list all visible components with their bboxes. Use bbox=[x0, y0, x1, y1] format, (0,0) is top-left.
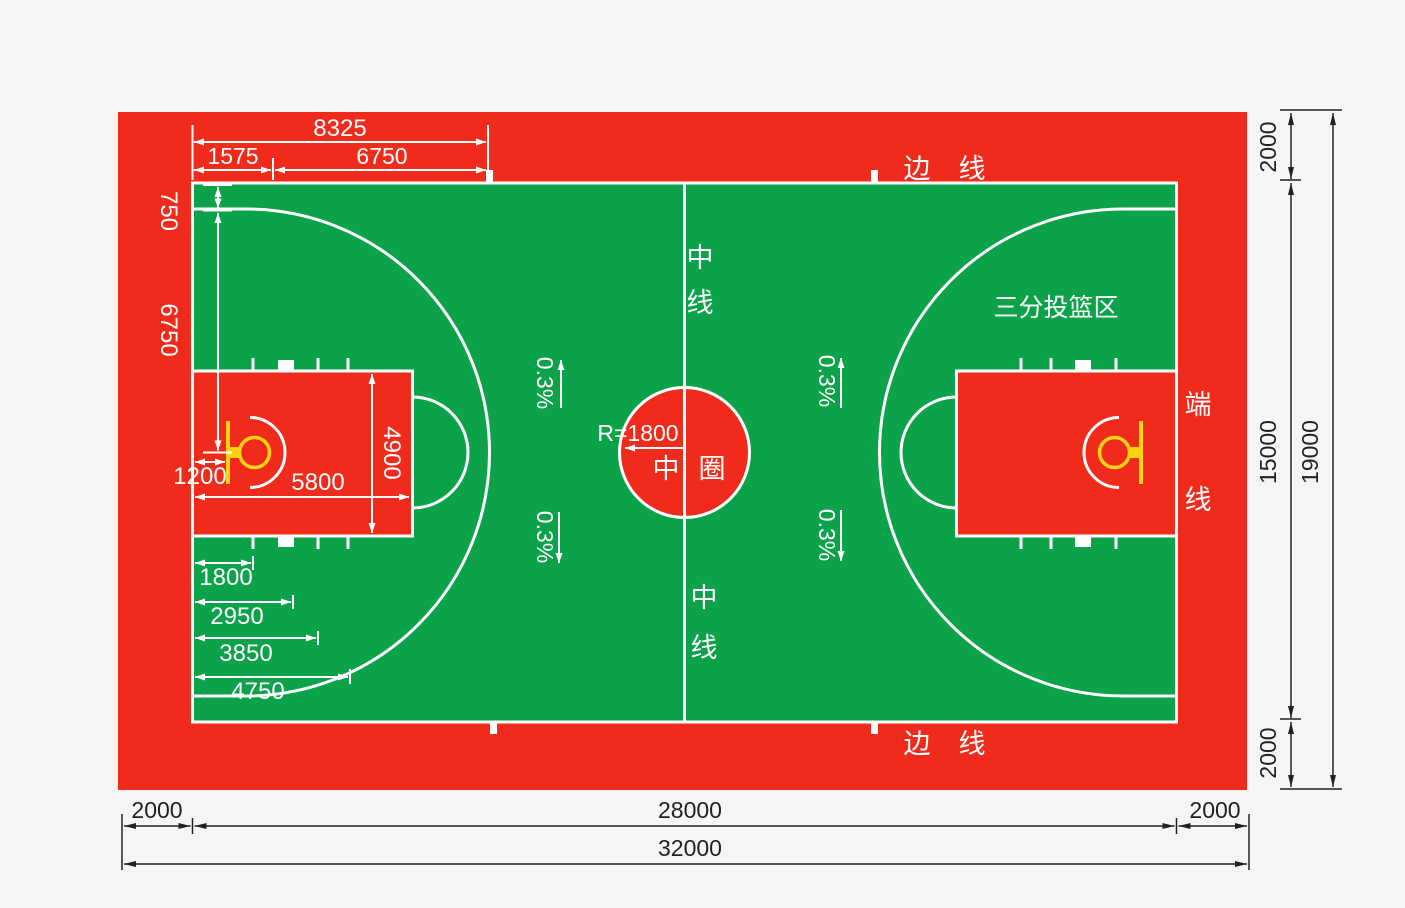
endline-label-2: 线 bbox=[1185, 485, 1212, 515]
center-line-label-top-1: 中 bbox=[687, 243, 714, 273]
dim-right: 2000 15000 19000 2000 bbox=[1255, 110, 1342, 789]
sideline-label-top-2: 线 bbox=[959, 154, 986, 184]
dim-1800: 1800 bbox=[199, 564, 252, 591]
dim-28000: 28000 bbox=[658, 797, 722, 823]
dim-2000-right-bottom: 2000 bbox=[1255, 727, 1281, 778]
slope-top-right: 0.3% bbox=[814, 355, 840, 407]
sideline-label-bottom-1: 边 bbox=[904, 729, 931, 759]
dim-2000-bottom-right: 2000 bbox=[1189, 797, 1240, 823]
sideline-label-bottom-2: 线 bbox=[959, 729, 986, 759]
center-circle-label-1: 中 bbox=[653, 454, 680, 484]
dim-32000: 32000 bbox=[658, 835, 722, 861]
dim-15000: 15000 bbox=[1255, 420, 1281, 484]
slope-bottom-right: 0.3% bbox=[814, 509, 840, 561]
dim-2950: 2950 bbox=[210, 603, 263, 630]
endline-label-1: 端 bbox=[1185, 390, 1212, 420]
center-line-label-bottom-2: 线 bbox=[691, 633, 718, 663]
slope-bottom-left: 0.3% bbox=[532, 511, 558, 563]
basketball-court-diagram-page: 8325 1575 6750 750 6750 1200 5800 4900 1… bbox=[0, 0, 1405, 908]
dim-8325: 8325 bbox=[313, 115, 366, 142]
dim-4900: 4900 bbox=[378, 426, 405, 479]
dim-2000-bottom-left: 2000 bbox=[131, 797, 182, 823]
court-diagram: 8325 1575 6750 750 6750 1200 5800 4900 1… bbox=[0, 0, 1405, 908]
dim-750: 750 bbox=[155, 191, 182, 231]
sideline-label-top-1: 边 bbox=[904, 154, 931, 184]
dim-2000-right-top: 2000 bbox=[1255, 121, 1281, 172]
dim-bottom: 2000 28000 2000 32000 bbox=[122, 797, 1249, 870]
dim-3850: 3850 bbox=[219, 640, 272, 667]
dim-1200: 1200 bbox=[173, 463, 226, 490]
dim-4750: 4750 bbox=[231, 678, 284, 705]
center-circle-label-2: 圈 bbox=[699, 454, 726, 484]
dim-5800: 5800 bbox=[291, 469, 344, 496]
center-line-label-top-2: 线 bbox=[687, 288, 714, 318]
dim-center-radius: R=1800 bbox=[597, 420, 678, 446]
dim-6750-left: 6750 bbox=[155, 303, 182, 356]
dim-6750-top: 6750 bbox=[356, 143, 407, 169]
dim-19000: 19000 bbox=[1297, 420, 1323, 484]
paint-right bbox=[957, 371, 1177, 536]
three-point-area-label: 三分投篮区 bbox=[993, 294, 1118, 322]
dim-1575: 1575 bbox=[207, 143, 258, 169]
center-line-label-bottom-1: 中 bbox=[691, 583, 718, 613]
slope-top-left: 0.3% bbox=[532, 357, 558, 409]
